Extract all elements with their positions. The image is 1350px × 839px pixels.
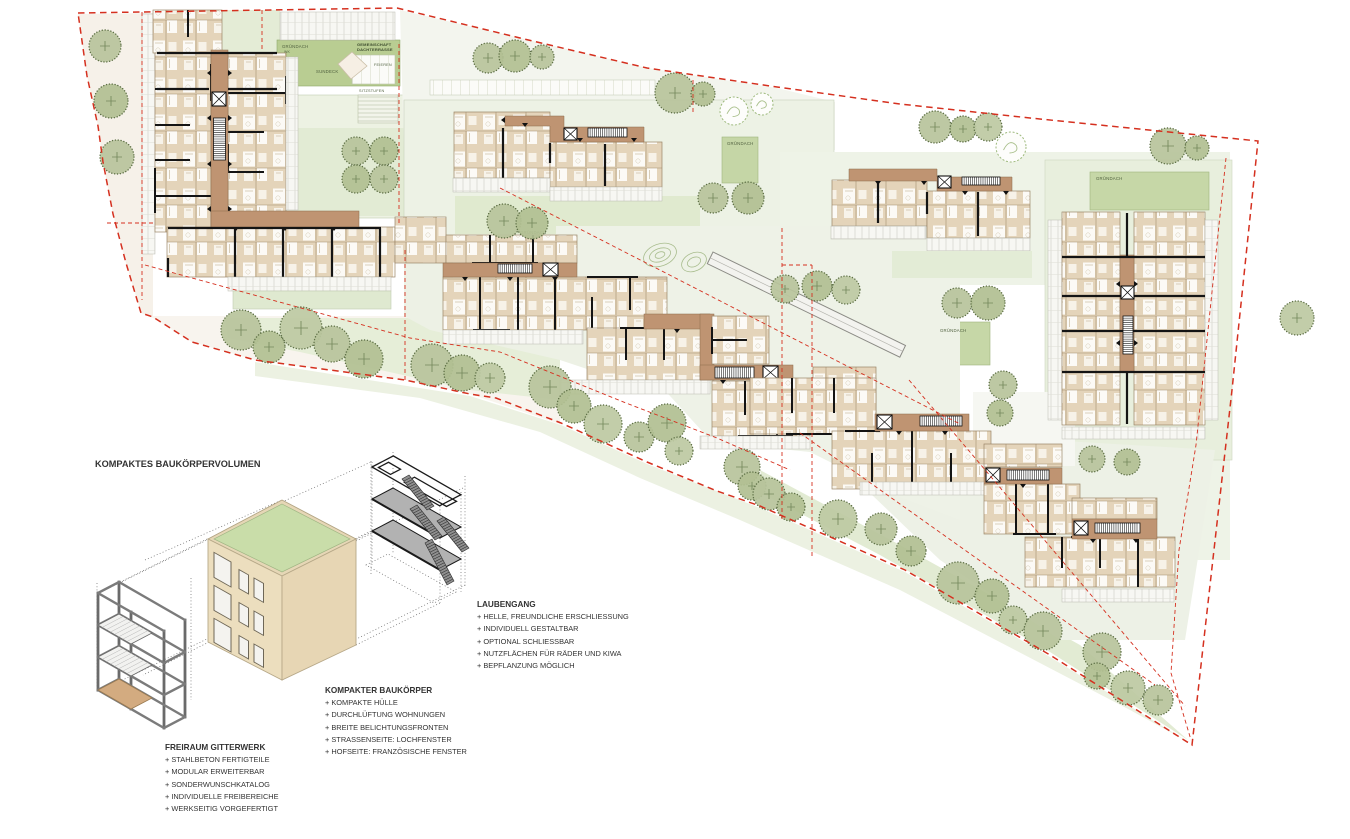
svg-text:+ MODULAR ERWEITERBAR: + MODULAR ERWEITERBAR [165, 767, 264, 776]
svg-text:GRÜNDACH: GRÜNDACH [727, 141, 753, 146]
svg-text:KOMPAKTER BAUKÖRPER: KOMPAKTER BAUKÖRPER [325, 685, 432, 695]
svg-text:+ KOMPAKTE HÜLLE: + KOMPAKTE HÜLLE [325, 698, 398, 707]
svg-text:+ STRASSENSEITE: LOCHFENSTER: + STRASSENSEITE: LOCHFENSTER [325, 735, 452, 744]
svg-text:+ OPTIONAL SCHLIESSBAR: + OPTIONAL SCHLIESSBAR [477, 637, 574, 646]
svg-text:+ DURCHLÜFTUNG WOHNUNGEN: + DURCHLÜFTUNG WOHNUNGEN [325, 710, 445, 719]
svg-text:SUNDECK: SUNDECK [316, 69, 338, 74]
svg-text:+ HELLE, FREUNDLICHE ERSCHLIES: + HELLE, FREUNDLICHE ERSCHLIESSUNG [477, 612, 629, 621]
svg-text:GRÜNDACH: GRÜNDACH [940, 328, 966, 333]
svg-text:SITZSTUFEN: SITZSTUFEN [359, 89, 384, 93]
svg-text:LAUBENGANG: LAUBENGANG [477, 600, 536, 609]
svg-text:+ SONDERWUNSCHKATALOG: + SONDERWUNSCHKATALOG [165, 780, 270, 789]
svg-text:GRÜNDACH: GRÜNDACH [1096, 176, 1122, 181]
svg-text:+ STAHLBETON FERTIGTEILE: + STAHLBETON FERTIGTEILE [165, 755, 270, 764]
svg-text:FEIEREN: FEIEREN [374, 63, 392, 67]
svg-text:+ BREITE BELICHTUNGSFRONTEN: + BREITE BELICHTUNGSFRONTEN [325, 723, 448, 732]
svg-text:+ WERKSEITIG VORGEFERTIGT: + WERKSEITIG VORGEFERTIGT [165, 804, 278, 813]
svg-text:+ NUTZFLÄCHEN FÜR RÄDER UND KI: + NUTZFLÄCHEN FÜR RÄDER UND KIWA [477, 649, 622, 658]
svg-text:+ INDIVIDUELL GESTALTBAR: + INDIVIDUELL GESTALTBAR [477, 624, 579, 633]
svg-text:+ BEPFLANZUNG MÖGLICH: + BEPFLANZUNG MÖGLICH [477, 661, 575, 670]
svg-text:FREIRAUM GITTERWERK: FREIRAUM GITTERWERK [165, 743, 265, 752]
svg-text:+ INDIVIDUELLE FREIBEREICHE: + INDIVIDUELLE FREIBEREICHE [165, 792, 279, 801]
svg-text:KOMPAKTES BAUKÖRPERVOLUMEN: KOMPAKTES BAUKÖRPERVOLUMEN [95, 459, 261, 469]
svg-text:GRÜNDACH: GRÜNDACH [282, 44, 308, 49]
svg-text:+ HOFSEITE: FRANZÖSISCHE FENST: + HOFSEITE: FRANZÖSISCHE FENSTER [325, 747, 467, 756]
svg-text:DACHTERRASSE: DACHTERRASSE [357, 47, 393, 52]
